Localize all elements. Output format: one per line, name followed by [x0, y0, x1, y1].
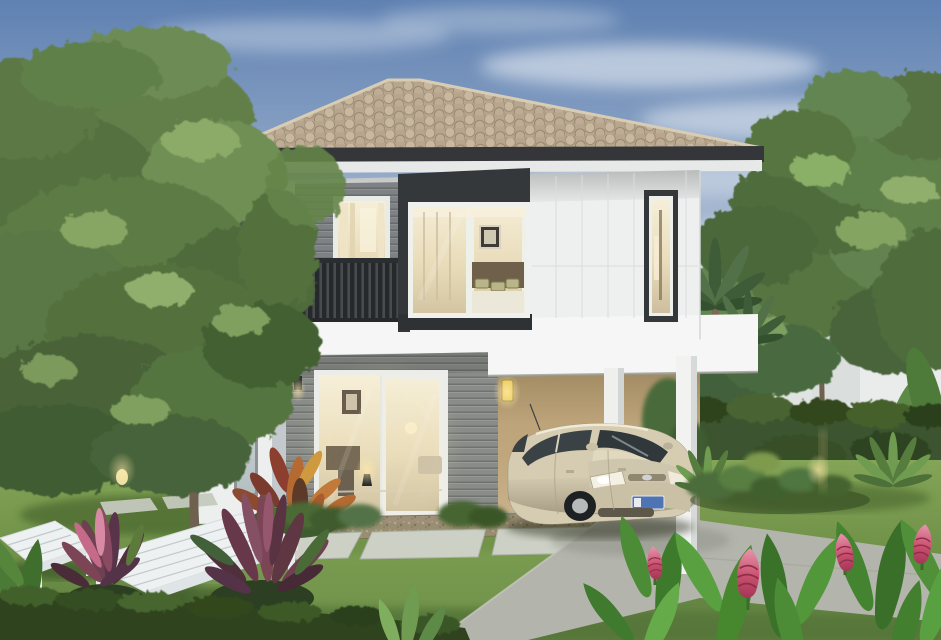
stepping-stone	[360, 529, 486, 559]
bed	[472, 262, 524, 313]
narrow-window-upper	[644, 190, 678, 322]
car-mirror	[586, 443, 598, 451]
garden-uplight	[806, 454, 830, 486]
bedroom-picture-frame	[480, 226, 500, 248]
corner-bedroom-window	[398, 168, 532, 332]
house-rendering	[0, 0, 941, 640]
rendering-canvas	[0, 0, 941, 640]
hedge-uplight	[108, 452, 136, 488]
